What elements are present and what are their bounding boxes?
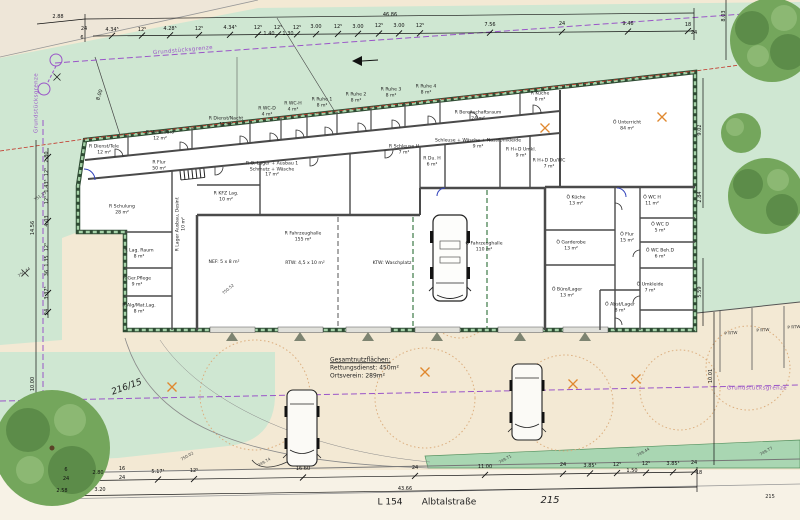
ambulance-in-hall <box>429 215 471 301</box>
site-plan-svg <box>0 0 800 520</box>
van-yard-2 <box>508 364 546 440</box>
van-yard-1 <box>283 390 321 466</box>
floor-plan: R Dienst/Tele12 m²R Verw/Büro12 m²R Dien… <box>0 0 800 520</box>
